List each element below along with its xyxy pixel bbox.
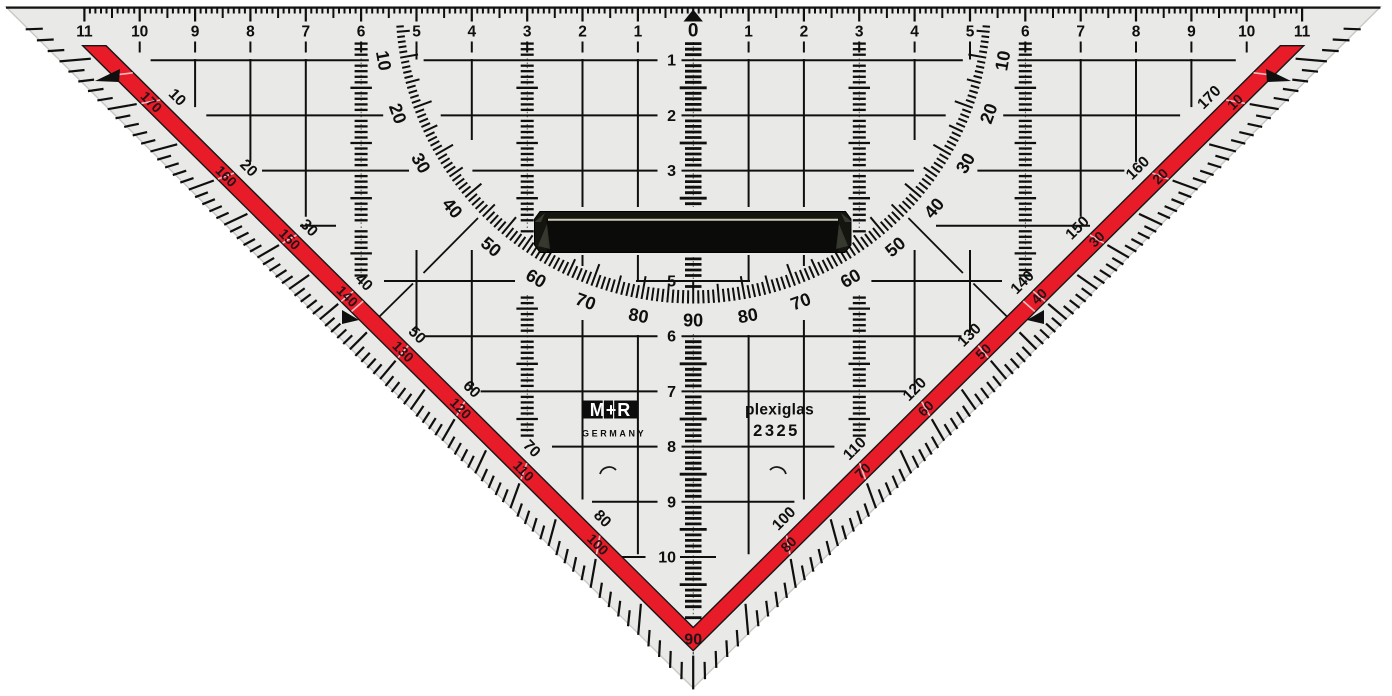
- svg-text:11: 11: [1294, 24, 1311, 41]
- svg-text:2325: 2325: [753, 422, 800, 440]
- svg-text:9: 9: [1187, 24, 1196, 41]
- svg-text:6: 6: [1021, 24, 1030, 41]
- svg-text:8: 8: [1132, 24, 1141, 41]
- svg-text:10: 10: [1238, 24, 1255, 41]
- svg-text:90: 90: [684, 632, 702, 649]
- svg-text:plexiglas: plexiglas: [745, 402, 814, 419]
- svg-text:4: 4: [467, 24, 476, 41]
- svg-text:1: 1: [667, 53, 676, 70]
- svg-text:9: 9: [191, 24, 200, 41]
- svg-text:10: 10: [991, 49, 1014, 72]
- svg-text:10: 10: [372, 49, 395, 72]
- svg-text:6: 6: [357, 24, 366, 41]
- svg-text:0: 0: [688, 21, 699, 42]
- svg-text:1: 1: [744, 24, 753, 41]
- svg-text:11: 11: [76, 24, 93, 41]
- svg-text:3: 3: [855, 24, 864, 41]
- svg-text:1: 1: [634, 24, 643, 41]
- svg-text:10: 10: [658, 550, 676, 567]
- svg-text:2: 2: [578, 24, 587, 41]
- svg-text:M+R: M+R: [590, 400, 632, 420]
- svg-text:2: 2: [800, 24, 809, 41]
- svg-text:80: 80: [736, 304, 759, 327]
- svg-text:8: 8: [246, 24, 255, 41]
- svg-text:GERMANY: GERMANY: [582, 429, 646, 439]
- svg-text:90: 90: [683, 311, 703, 331]
- svg-text:5: 5: [966, 24, 975, 41]
- svg-text:80: 80: [627, 304, 650, 327]
- svg-text:10: 10: [131, 24, 148, 41]
- svg-text:4: 4: [910, 24, 919, 41]
- svg-text:7: 7: [667, 384, 676, 401]
- svg-text:6: 6: [667, 329, 676, 346]
- svg-text:9: 9: [667, 494, 676, 511]
- svg-text:3: 3: [667, 163, 676, 180]
- svg-text:7: 7: [301, 24, 310, 41]
- svg-text:8: 8: [667, 439, 676, 456]
- svg-text:5: 5: [412, 24, 421, 41]
- svg-text:3: 3: [523, 24, 532, 41]
- svg-text:7: 7: [1076, 24, 1085, 41]
- svg-text:2: 2: [667, 108, 676, 125]
